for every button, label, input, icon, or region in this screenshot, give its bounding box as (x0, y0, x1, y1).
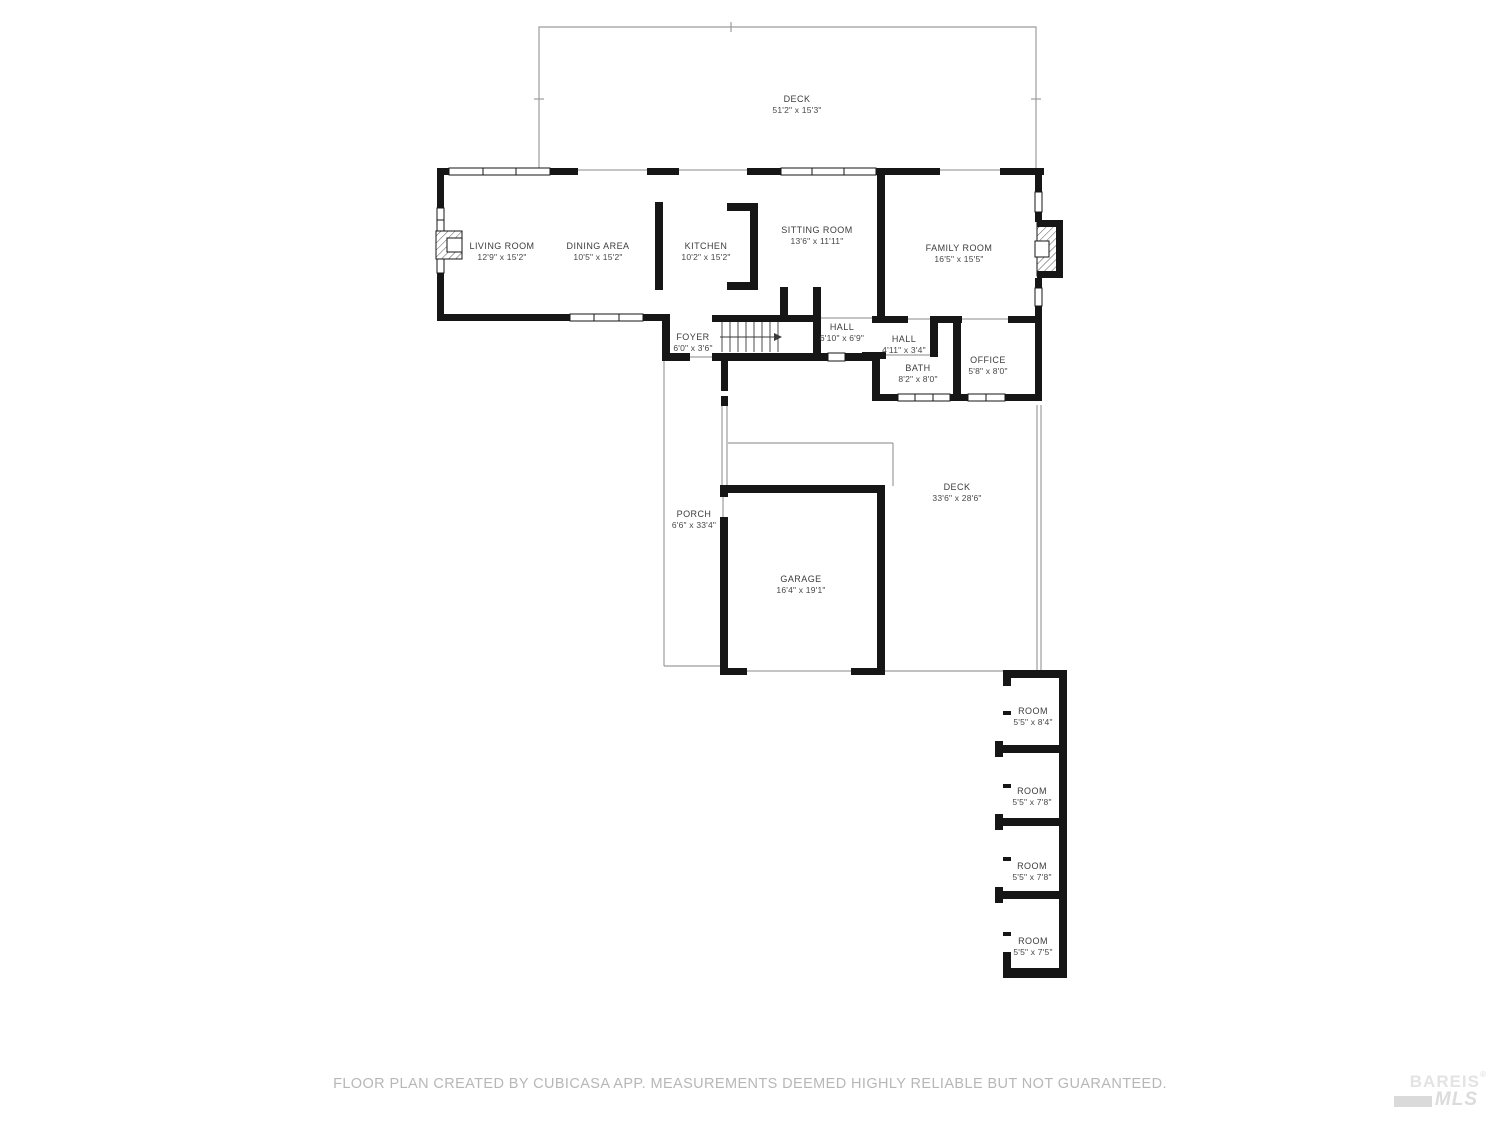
room-label-garage: GARAGE 16'4" x 19'1" (776, 574, 825, 596)
logo-registered-mark: ® (1480, 1070, 1486, 1079)
room-label-living-room: LIVING ROOM 12'9" x 15'2" (470, 241, 535, 263)
room-label-dining-area: DINING AREA 10'5" x 15'2" (567, 241, 630, 263)
bareis-mls-logo: BAREIS ® MLS (1394, 1072, 1486, 1114)
footer-disclaimer: FLOOR PLAN CREATED BY CUBICASA APP. MEAS… (0, 1076, 1500, 1092)
floor-plan-drawing (0, 0, 1500, 1125)
room-label-office: OFFICE 5'8" x 8'0" (968, 355, 1007, 377)
room-label-room-1: ROOM 5'5" x 8'4" (1013, 706, 1052, 728)
room-label-room-2: ROOM 5'5" x 7'8" (1012, 786, 1051, 808)
room-label-room-4: ROOM 5'5" x 7'5" (1013, 936, 1052, 958)
room-label-foyer: FOYER 6'0" x 3'6" (673, 332, 712, 354)
room-label-bath: BATH 8'2" x 8'0" (898, 363, 937, 385)
room-label-hall-upper: HALL 6'10" x 6'9" (820, 322, 864, 344)
room-label-deck-top: DECK 51'2" x 15'3" (772, 94, 821, 116)
room-label-deck-main: DECK 33'6" x 28'6" (932, 482, 981, 504)
floor-plan-page: DECK 51'2" x 15'3" LIVING ROOM 12'9" x 1… (0, 0, 1500, 1125)
room-label-hall-lower: HALL 4'11" x 3'4" (882, 334, 926, 356)
room-label-kitchen: KITCHEN 10'2" x 15'2" (681, 241, 730, 263)
room-label-family-room: FAMILY ROOM 16'5" x 15'5" (926, 243, 993, 265)
room-label-room-3: ROOM 5'5" x 7'8" (1012, 861, 1051, 883)
room-label-sitting-room: SITTING ROOM 13'6" x 11'11" (781, 225, 852, 247)
logo-bar (1394, 1096, 1432, 1107)
walls (437, 168, 1067, 978)
room-label-porch: PORCH 6'6" x 33'4" (672, 509, 716, 531)
stairs (720, 322, 782, 352)
logo-mls-text: MLS (1435, 1089, 1478, 1111)
